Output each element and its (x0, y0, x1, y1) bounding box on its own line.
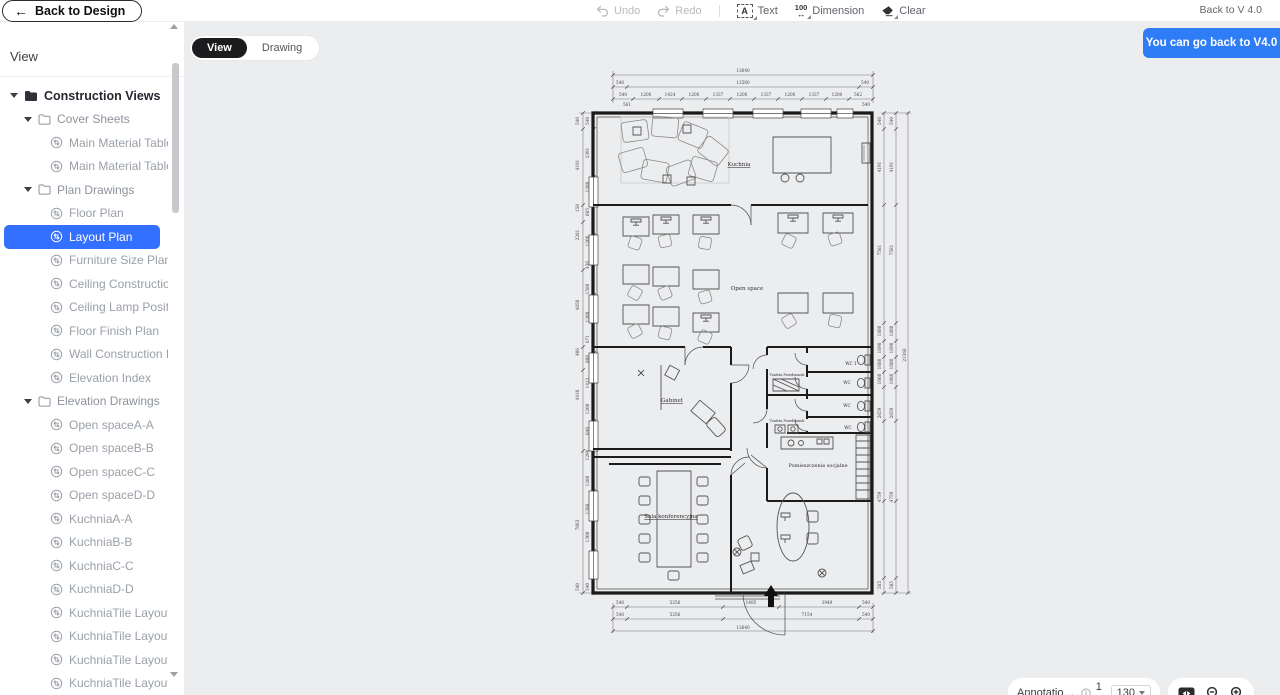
dim-label: 2391 (585, 147, 590, 158)
room-label-wc: WC (844, 425, 852, 430)
dim-label: 1080 (877, 358, 882, 369)
dim-label: 540 (862, 600, 870, 605)
dim-label: 2281 (575, 229, 580, 240)
dim-label: 1200 (641, 92, 652, 97)
tree-item-label: Cover Sheets (57, 112, 130, 126)
tree-item-label: KuchniaTile LayoutB-B (69, 629, 168, 643)
dim-label: 150 (575, 204, 580, 212)
eraser-icon (881, 5, 894, 17)
folder-icon (38, 396, 51, 407)
view-icon (50, 465, 63, 478)
dim-label: 540 (616, 612, 624, 617)
tree-item-elevation-index[interactable]: Elevation Index (0, 366, 168, 390)
tree-item-wall-construction-index[interactable]: Wall Construction Index (0, 343, 168, 367)
sidebar-title: View (10, 49, 38, 64)
tree-item-floor-finish-plan[interactable]: Floor Finish Plan (0, 319, 168, 343)
tree-item-label: Wall Construction Index (69, 347, 168, 361)
tree-item-label: Main Material Table(2) (69, 159, 168, 173)
version-banner[interactable]: You can go back to V4.0 (1143, 28, 1280, 58)
dim-label: 1200 (585, 403, 590, 414)
room-label-wc-1: WC 1 (845, 361, 857, 366)
dim-label: 1200 (832, 92, 843, 97)
tree-item-label: Elevation Drawings (57, 394, 160, 408)
view-icon (50, 301, 63, 314)
dim-label: 7083 (575, 519, 580, 530)
tree-item-label: KuchniaTile LayoutC-C (69, 653, 168, 667)
dim-label: 540 (575, 583, 580, 591)
toolbar-tools: Undo Redo A Text 100↔ Dimension Clear (596, 0, 926, 22)
dim-label: 1800 (889, 325, 894, 336)
tree-item-label: KuchniaTile LayoutD-D (69, 676, 168, 690)
tree-item-main-material-table-1[interactable]: Main Material Table(1) (0, 131, 168, 155)
back-arrow-icon: ← (14, 4, 28, 18)
chevron-down-icon (1139, 691, 1145, 695)
view-icon (50, 207, 63, 220)
dim-label: 540 (585, 117, 590, 125)
scrollbar-thumb[interactable] (172, 63, 179, 213)
dimension-tool-label: Dimension (812, 5, 864, 17)
room-label-wc: WC (843, 380, 851, 385)
annotation-style-label[interactable]: Annotation S... (1017, 687, 1076, 695)
dim-label: 540 (861, 80, 869, 85)
dim-label: 1080 (889, 358, 894, 369)
dim-label: 1200 (585, 181, 590, 192)
text-tool-button[interactable]: A Text (737, 4, 778, 18)
undo-label: Undo (614, 5, 640, 17)
scrollbar-down-icon[interactable] (170, 672, 178, 677)
dim-label: 436 (585, 261, 590, 269)
tree-item-label: Construction Views (44, 89, 160, 103)
dim-label: 7581 (889, 244, 894, 255)
zoom-in-icon[interactable] (1230, 686, 1244, 695)
scale-prefix-label: 1 : (1096, 681, 1106, 695)
dim-label: 13640 (736, 68, 750, 73)
view-icon (50, 371, 63, 384)
dim-label: 1200 (689, 92, 700, 97)
dim-label: 13640 (736, 625, 750, 630)
dim-label: 1690 (877, 342, 882, 353)
sidebar-separator (0, 76, 185, 77)
back-to-design-button[interactable]: ← Back to Design (2, 0, 142, 22)
tree-item-main-material-table-2[interactable]: Main Material Table(2) (0, 155, 168, 179)
back-to-v4-link[interactable]: Back to V 4.0 (1200, 4, 1262, 16)
dim-label: 4410 (575, 389, 580, 400)
tree-item-kuchniaa-a[interactable]: KuchniaA-A (0, 507, 168, 531)
dim-label: 561 (623, 102, 631, 107)
view-icon (50, 536, 63, 549)
dim-label: 540 (889, 117, 894, 125)
dim-label: 1412 (585, 377, 590, 388)
tree-item-label: Layout Plan (69, 230, 132, 244)
tab-view[interactable]: View (192, 38, 247, 58)
tree-item-kuchniatile-layoutc-c[interactable]: KuchniaTile LayoutC-C (0, 648, 168, 672)
zoom-controls-pill (1168, 678, 1254, 695)
fit-to-screen-icon[interactable] (1178, 687, 1195, 695)
dim-label: 1580 (585, 283, 590, 294)
redo-label: Redo (675, 5, 701, 17)
dim-label: 2659 (877, 407, 882, 418)
scale-select[interactable]: 130 (1111, 685, 1151, 695)
clear-tool-button[interactable]: Clear (881, 5, 925, 17)
dim-label: 585 (877, 581, 882, 589)
dim-label: 540 (585, 583, 590, 591)
tree-item-kuchniatile-layoutb-b[interactable]: KuchniaTile LayoutB-B (0, 625, 168, 649)
dim-label: 1200 (737, 92, 748, 97)
dim-label: 1300 (585, 531, 590, 542)
tree-item-label: KuchniaA-A (69, 512, 132, 526)
dim-label: 3949 (822, 600, 833, 605)
dim-label: 4759 (889, 491, 894, 502)
tree-item-open-spacec-c[interactable]: Open spaceC-C (0, 460, 168, 484)
dim-label: 800 (585, 355, 590, 363)
zoom-out-icon[interactable] (1206, 686, 1220, 695)
dim-label: 2659 (889, 407, 894, 418)
tree-item-label: Open spaceB-B (69, 441, 154, 455)
tree-item-open-spacea-a[interactable]: Open spaceA-A (0, 413, 168, 437)
tree-folder-elevation-drawings[interactable]: Elevation Drawings (0, 390, 168, 414)
view-drawing-tabs: View Drawing (190, 36, 319, 60)
tree-item-label: Furniture Size Plan (69, 253, 168, 267)
dim-label: 1337 (713, 92, 724, 97)
view-icon (50, 583, 63, 596)
dim-label: 4191 (877, 161, 882, 172)
toolbar-divider (719, 5, 720, 17)
dim-label: 5256 (670, 600, 681, 605)
view-icon (50, 442, 63, 455)
tree-item-label: Ceiling Construction (69, 277, 168, 291)
redo-button[interactable]: Redo (657, 5, 701, 17)
tree-item-label: KuchniaD-D (69, 582, 134, 596)
dim-label: 4759 (877, 491, 882, 502)
dim-label: 5256 (670, 612, 681, 617)
view-icon (50, 230, 63, 243)
tree-folder-cover-sheets[interactable]: Cover Sheets (0, 108, 168, 132)
tree-item-floor-plan[interactable]: Floor Plan (0, 202, 168, 226)
tree-item-ceiling-lamp-position[interactable]: Ceiling Lamp Position (0, 296, 168, 320)
view-icon (50, 630, 63, 643)
tree-item-label: Ceiling Lamp Position (69, 300, 168, 314)
walls (589, 109, 872, 635)
info-icon[interactable] (1081, 688, 1091, 695)
redo-icon (657, 5, 670, 17)
view-icon (50, 512, 63, 525)
scrollbar-up-icon[interactable] (170, 24, 178, 29)
dim-label: 671 (585, 335, 590, 343)
dim-label: 1060 (877, 373, 882, 384)
dim-label: 1290 (585, 449, 590, 460)
room-label-open-space: Open space (731, 286, 764, 292)
undo-button[interactable]: Undo (596, 5, 640, 17)
folder-icon (38, 184, 51, 195)
view-icon (50, 559, 63, 572)
dimension-tool-icon: 100↔ (795, 5, 808, 17)
dim-label: 562 (854, 92, 862, 97)
text-tool-icon: A (737, 4, 753, 18)
dim-label: 12560 (736, 80, 750, 85)
tree-item-furniture-size-plan[interactable]: Furniture Size Plan (0, 249, 168, 273)
view-tree: Construction ViewsCover SheetsMain Mater… (0, 84, 168, 695)
caret-down-icon[interactable] (10, 93, 18, 98)
dim-label: 4850 (575, 299, 580, 310)
tree-item-label: Main Material Table(1) (69, 136, 168, 150)
room-label-toaleta-przedsionek: Toaleta Przedsionek (770, 419, 806, 423)
dim-label: 540 (862, 612, 870, 617)
folder-icon (38, 114, 51, 125)
dim-label: 540 (877, 117, 882, 125)
dim-label: 605 (585, 208, 590, 216)
dim-label: 540 (616, 80, 624, 85)
dim-label: 7581 (877, 244, 882, 255)
undo-icon (596, 5, 609, 17)
tree-item-label: KuchniaTile LayoutA-A (69, 606, 168, 620)
tree-item-open-spaced-d[interactable]: Open spaceD-D (0, 484, 168, 508)
tree-item-label: Plan Drawings (57, 183, 134, 197)
dim-label: 4191 (889, 161, 894, 172)
dim-label: 1060 (889, 373, 894, 384)
back-to-design-label: Back to Design (35, 4, 125, 18)
view-icon (50, 160, 63, 173)
dim-label: 406 (575, 348, 580, 356)
scale-value: 130 (1117, 687, 1135, 695)
dim-label: 540 (862, 102, 870, 107)
dim-label: 1800 (877, 325, 882, 336)
banner-text: You can go back to V4.0 (1146, 37, 1277, 49)
tree-item-open-spaceb-b[interactable]: Open spaceB-B (0, 437, 168, 461)
view-icon (50, 418, 63, 431)
dim-label: 1200 (585, 235, 590, 246)
annotation-scale-pill: Annotation S... 1 : 130 (1008, 678, 1160, 695)
tree-item-label: Floor Plan (69, 206, 124, 220)
dim-label: 1690 (889, 342, 894, 353)
tree-folder-construction-views[interactable]: Construction Views (0, 84, 168, 108)
tree-folder-plan-drawings[interactable]: Plan Drawings (0, 178, 168, 202)
view-icon (50, 489, 63, 502)
tree-item-layout-plan[interactable]: Layout Plan (4, 225, 160, 249)
tree-item-label: Elevation Index (69, 371, 151, 385)
dim-label: 585 (889, 581, 894, 589)
dim-label: 540 (616, 600, 624, 605)
caret-down-icon[interactable] (24, 399, 32, 404)
dim-label: 540 (619, 92, 627, 97)
room-label-sala-konferencyjna: Sala konferencyjna (644, 514, 698, 520)
tree-item-kuchniad-d[interactable]: KuchniaD-D (0, 578, 168, 602)
tree-item-kuchniatile-layouta-a[interactable]: KuchniaTile LayoutA-A (0, 601, 168, 625)
tab-drawing[interactable]: Drawing (247, 38, 317, 58)
room-label-kuchnia: Kuchnia (728, 162, 751, 168)
dim-label: 540 (575, 117, 580, 125)
dim-label: 1280 (585, 475, 590, 486)
tree-item-kuchniab-b[interactable]: KuchniaB-B (0, 531, 168, 555)
dim-label: 1337 (761, 92, 772, 97)
tree-item-kuchniac-c[interactable]: KuchniaC-C (0, 554, 168, 578)
room-label-wc: WC (843, 403, 851, 408)
room-label-toaleta-przedsionek: Toaleta Przedsionek (770, 373, 806, 377)
tree-item-kuchniatile-layoutd-d[interactable]: KuchniaTile LayoutD-D (0, 672, 168, 695)
tree-item-label: Open spaceA-A (69, 418, 154, 432)
room-label-pomieszczenie-socjalne: Pomieszczenie socjalne (788, 463, 847, 469)
tree-item-label: Floor Finish Plan (69, 324, 159, 338)
view-sidebar: View Construction ViewsCover SheetsMain … (0, 22, 185, 695)
dim-label: 1200 (785, 92, 796, 97)
dim-label: 7154 (802, 612, 813, 617)
tree-item-ceiling-construction[interactable]: Ceiling Construction (0, 272, 168, 296)
dim-label: 1424 (665, 92, 676, 97)
dim-label: 21368 (902, 348, 907, 362)
view-icon (50, 677, 63, 690)
room-label-gabinet: Gabinet (661, 398, 684, 404)
dimension-lines (579, 71, 911, 633)
clear-tool-label: Clear (899, 5, 925, 17)
tree-item-label: Open spaceD-D (69, 488, 155, 502)
view-icon (50, 348, 63, 361)
floor-plan-drawing: 1364054012560540540120014241200133712001… (575, 65, 920, 645)
folder-icon (24, 90, 38, 102)
tree-item-label: KuchniaB-B (69, 535, 132, 549)
dim-label: 1337 (809, 92, 820, 97)
view-icon (50, 324, 63, 337)
dim-label: 1495 (746, 600, 757, 605)
app-window: ← Back to Design Undo Redo A Text 100↔ (0, 0, 1280, 695)
caret-down-icon[interactable] (24, 187, 32, 192)
view-icon (50, 606, 63, 619)
view-icon (50, 254, 63, 267)
view-icon (50, 136, 63, 149)
view-icon (50, 277, 63, 290)
dim-label: 4191 (575, 159, 580, 170)
dim-label: 1398 (585, 503, 590, 514)
tree-item-label: Open spaceC-C (69, 465, 155, 479)
entrance-arrow (764, 585, 778, 607)
text-tool-label: Text (758, 5, 778, 17)
tree-item-label: KuchniaC-C (69, 559, 134, 573)
view-icon (50, 653, 63, 666)
dimension-tool-button[interactable]: 100↔ Dimension (795, 5, 864, 17)
dim-label: 640 (585, 427, 590, 435)
dim-label: 1200 (585, 311, 590, 322)
caret-down-icon[interactable] (24, 117, 32, 122)
dimension-ticks (581, 73, 910, 633)
